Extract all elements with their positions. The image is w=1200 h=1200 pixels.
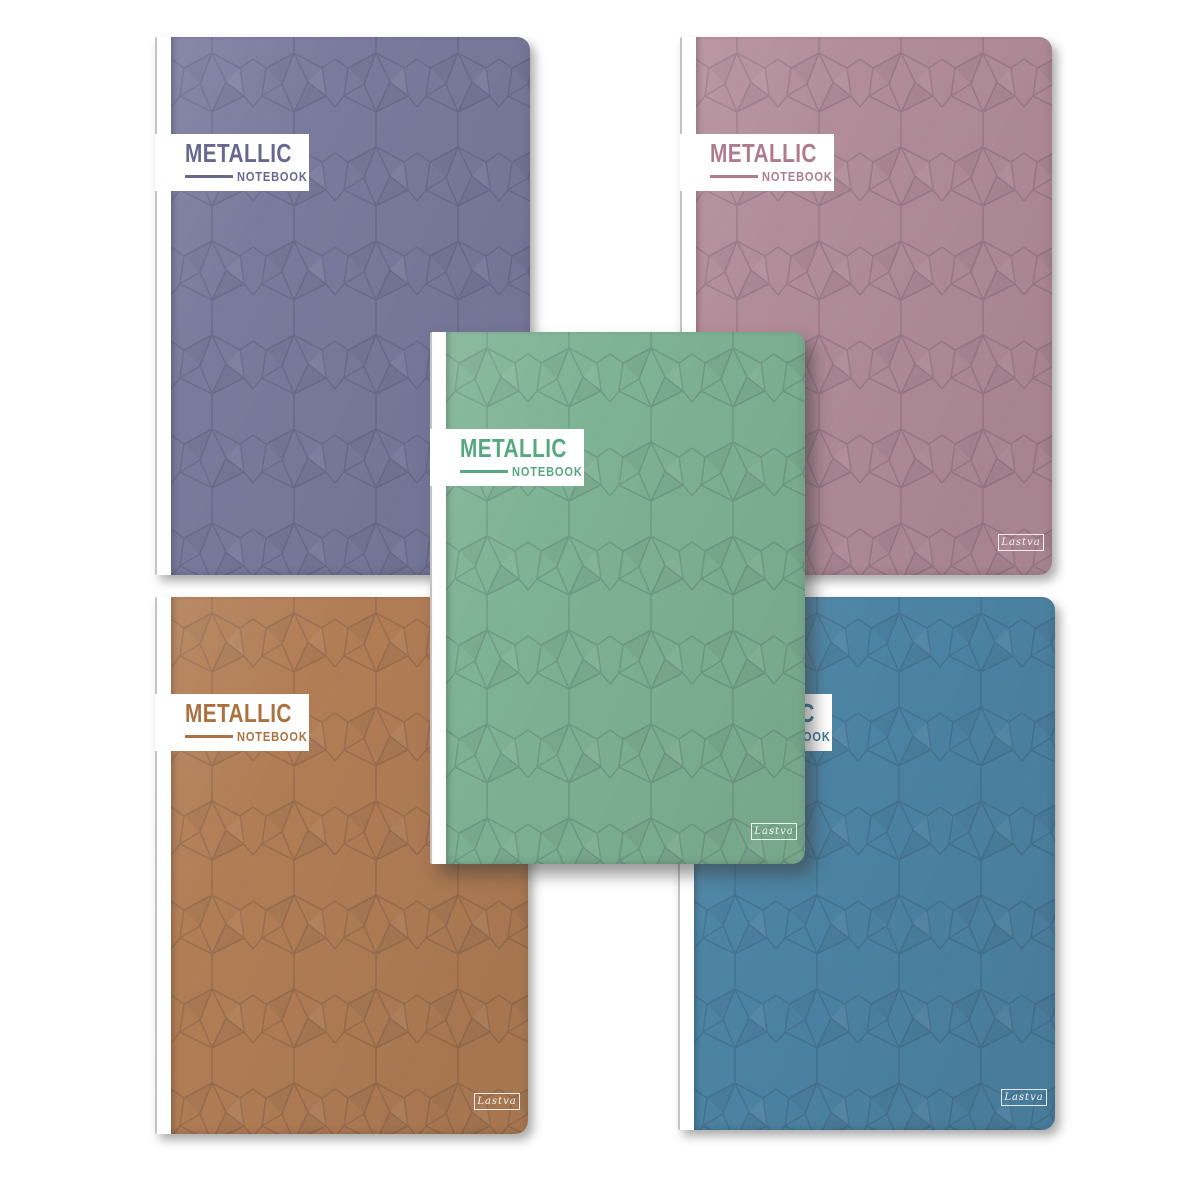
brand-signature: Lastva [998, 534, 1044, 551]
notebook-green: Lastva METALLIC NOTEBOOK [430, 332, 805, 864]
cover-title: METALLIC [710, 140, 803, 166]
brand-signature: Lastva [751, 823, 797, 840]
notebook-cover: Lastva [446, 332, 805, 864]
metallic-notebook-collage: Lastva METALLIC NOTEBOOK Lastva METALLIC… [0, 0, 1200, 1200]
label-rule [460, 470, 508, 473]
brand-signature: Lastva [474, 1093, 520, 1110]
cover-title: METALLIC [185, 700, 278, 726]
cover-title: METALLIC [185, 140, 278, 166]
notebook-spine [155, 597, 171, 1134]
notebook-spine [430, 332, 446, 864]
cover-subtitle: NOTEBOOK [512, 464, 583, 479]
label-rule [185, 175, 233, 178]
cover-title: METALLIC [460, 435, 553, 461]
cover-label: METALLIC NOTEBOOK [430, 429, 584, 486]
cover-subtitle: NOTEBOOK [237, 729, 308, 744]
cover-subtitle: NOTEBOOK [762, 169, 833, 184]
notebook-spine [155, 37, 171, 575]
cover-subtitle: NOTEBOOK [237, 169, 308, 184]
cover-label: METALLIC NOTEBOOK [155, 134, 309, 191]
facet-pattern [446, 332, 805, 864]
cover-label: METALLIC NOTEBOOK [680, 134, 834, 191]
label-rule [710, 175, 758, 178]
cover-label: METALLIC NOTEBOOK [155, 694, 309, 751]
label-rule [185, 735, 233, 738]
brand-signature: Lastva [1001, 1089, 1047, 1106]
